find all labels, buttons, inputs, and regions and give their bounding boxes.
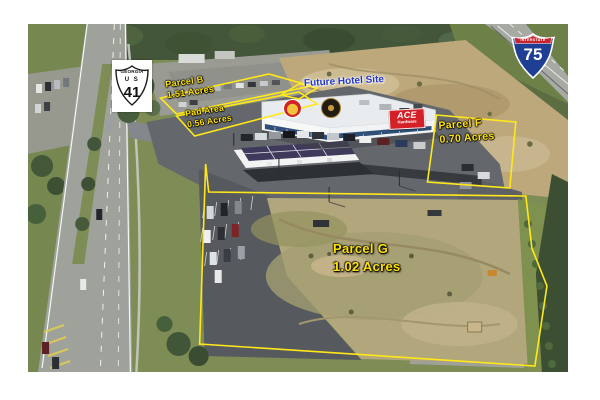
i75-banner-label: INTERSTATE [510, 38, 556, 42]
us41-state-label: GEORGIA [112, 69, 152, 74]
parcel-g-label: Parcel G 1.02 Acres [333, 240, 401, 275]
aerial-scene [28, 24, 568, 372]
parcel-f-label: Parcel F 0.70 Acres [438, 115, 495, 147]
parcel-g-name: Parcel G [333, 240, 401, 258]
dark-circle-brand-logo [321, 98, 341, 118]
us41-route-shield: GEORGIA U S 41 [112, 60, 152, 112]
ace-hardware-sign: ACE Hardware [389, 108, 426, 130]
aerial-photo: GEORGIA U S 41 INTERSTATE 75 Parcel B 1.… [28, 24, 568, 372]
red-circle-brand-logo [283, 99, 302, 118]
ace-sign-line2: Hardware [390, 119, 424, 125]
parcel-g-acreage: 1.02 Acres [333, 258, 401, 276]
us41-number-label: 41 [112, 84, 152, 101]
us41-designation-label: U S [112, 77, 152, 83]
i75-route-shield: INTERSTATE 75 [510, 32, 556, 80]
i75-number-label: 75 [510, 45, 556, 65]
